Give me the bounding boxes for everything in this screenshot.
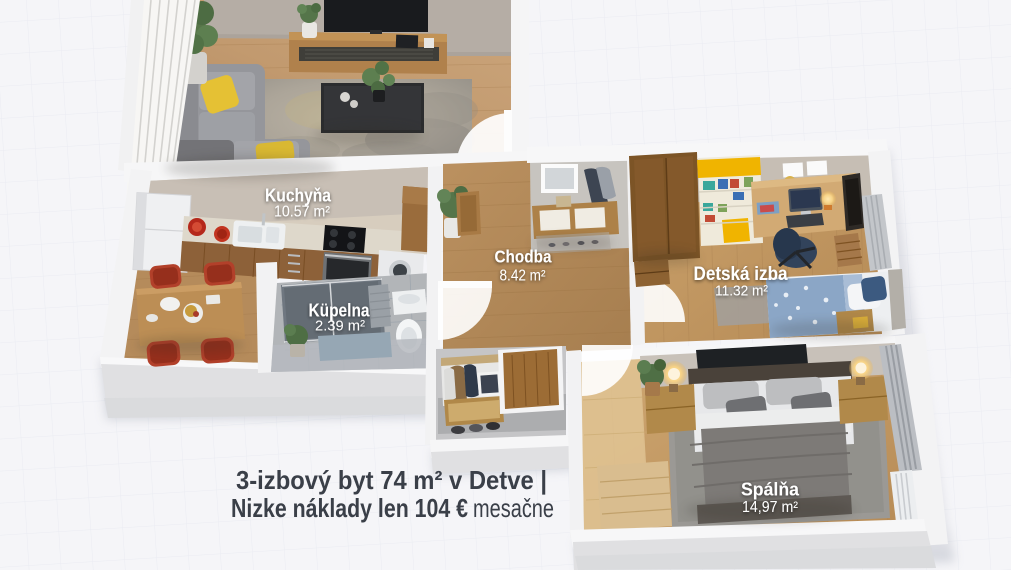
svg-text:Spálňa: Spálňa <box>741 480 800 500</box>
svg-text:Chodba: Chodba <box>495 247 552 267</box>
svg-text:11.32 m²: 11.32 m² <box>715 283 768 300</box>
svg-text:2.39 m²: 2.39 m² <box>315 318 365 335</box>
svg-text:3-izbový byt 74 m² v Detve |: 3-izbový byt 74 m² v Detve | <box>236 465 547 495</box>
svg-text:Nizke náklady len 104 €: Nizke náklady len 104 € <box>231 493 468 523</box>
svg-text:10.57 m²: 10.57 m² <box>274 204 330 221</box>
svg-text:14,97 m²: 14,97 m² <box>742 499 798 516</box>
svg-text:mesačne: mesačne <box>473 493 554 523</box>
svg-text:Kuchyňa: Kuchyňa <box>265 186 332 206</box>
svg-text:8.42 m²: 8.42 m² <box>500 268 546 285</box>
